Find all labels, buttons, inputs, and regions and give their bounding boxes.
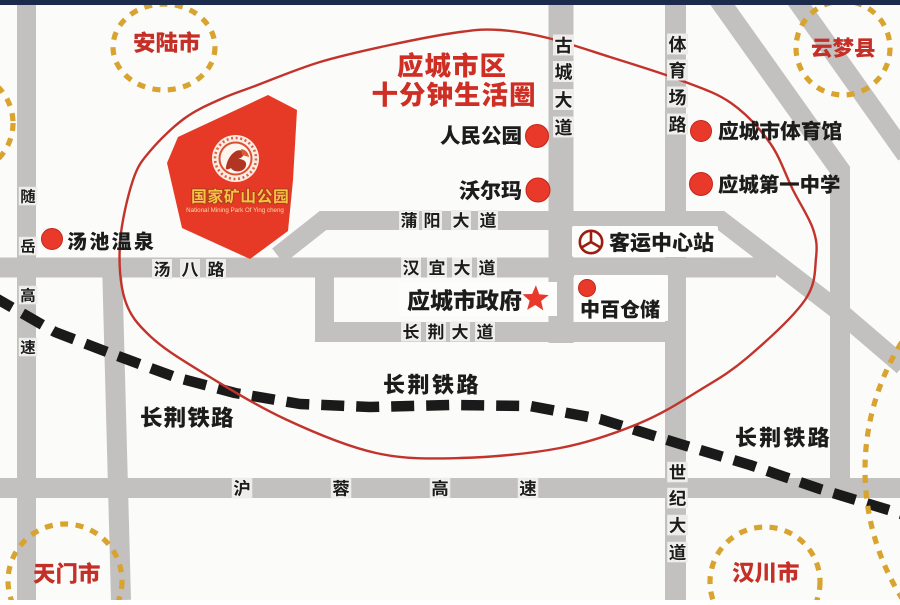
svg-text:National Mining Park Of Ying c: National Mining Park Of Ying cheng xyxy=(186,207,284,214)
